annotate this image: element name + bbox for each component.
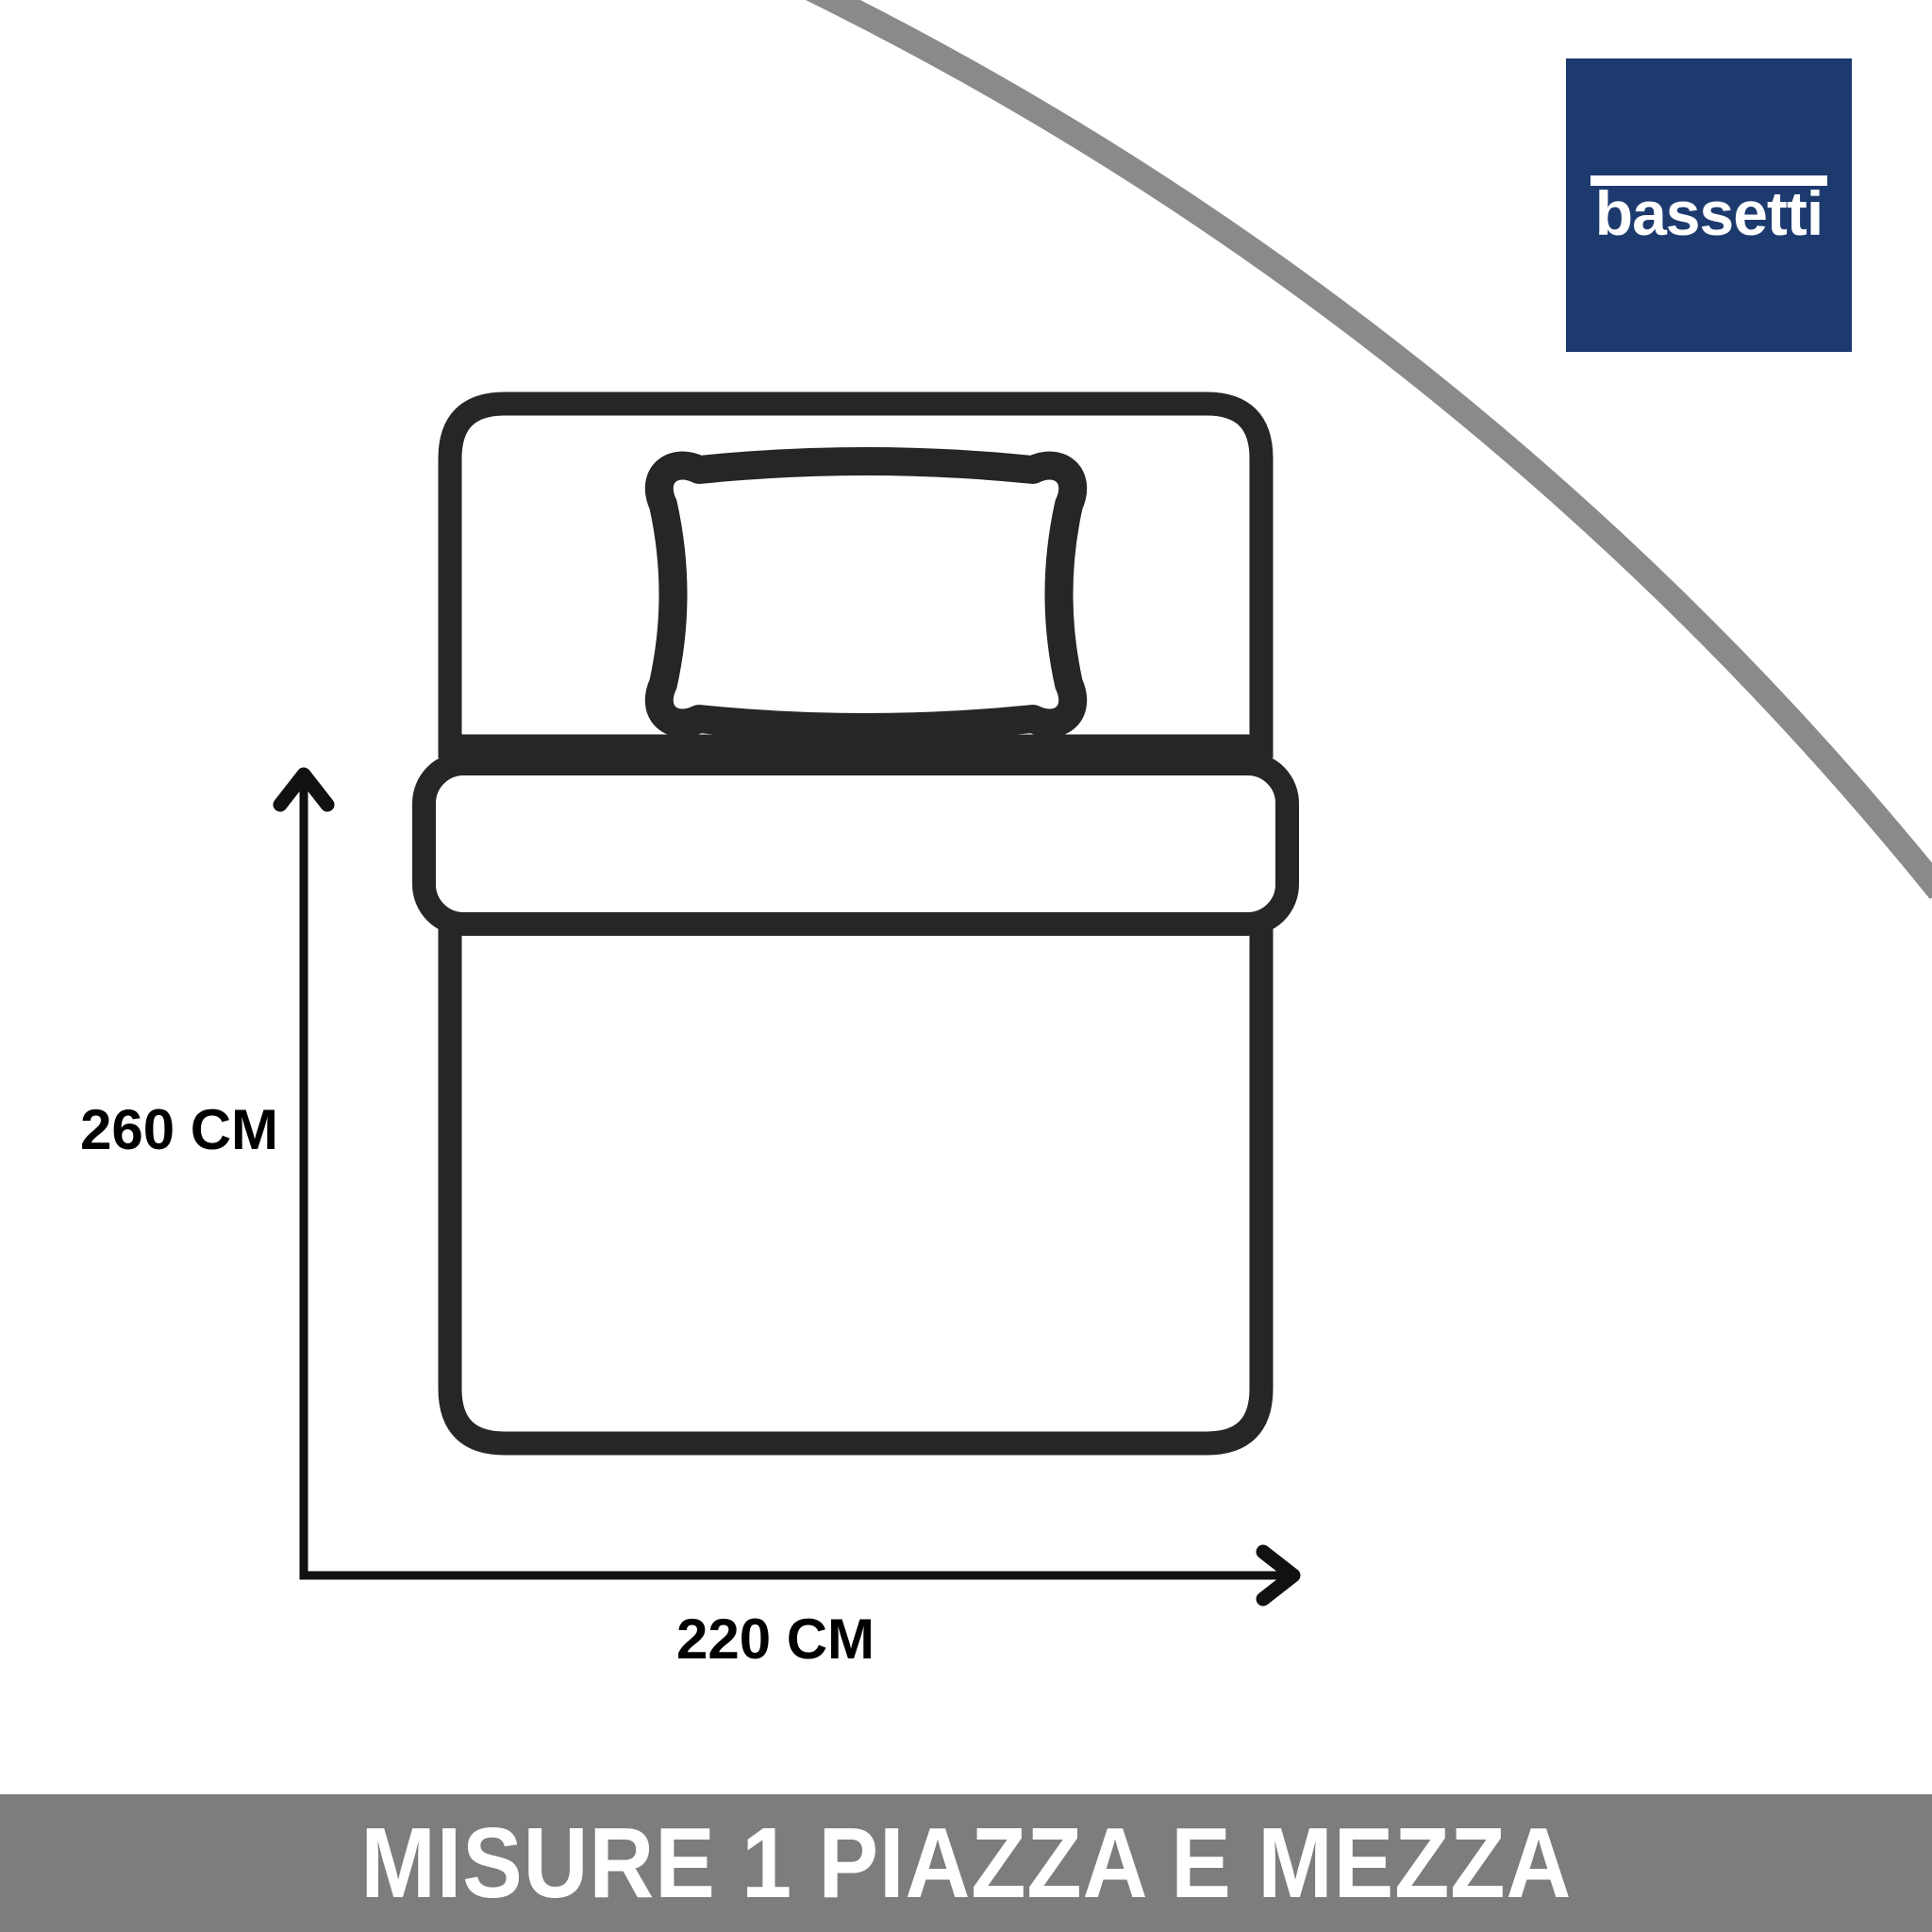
product-size-diagram-page: 260 CM 220 CM bassetti MISURE 1 PIAZZA E… bbox=[0, 0, 1932, 1932]
bassetti-logo: bassetti bbox=[1566, 58, 1852, 352]
banner-title: MISURE 1 PIAZZA E MEZZA bbox=[360, 1794, 1572, 1932]
size-banner: MISURE 1 PIAZZA E MEZZA bbox=[0, 1794, 1932, 1932]
height-dimension-label: 260 CM bbox=[38, 1100, 321, 1160]
pillow-icon bbox=[659, 461, 1073, 727]
width-dimension-label: 220 CM bbox=[634, 1609, 917, 1670]
bed-bottom-section bbox=[450, 920, 1261, 1443]
bed-fold-band bbox=[425, 764, 1288, 924]
logo-wordmark: bassetti bbox=[1566, 182, 1852, 244]
